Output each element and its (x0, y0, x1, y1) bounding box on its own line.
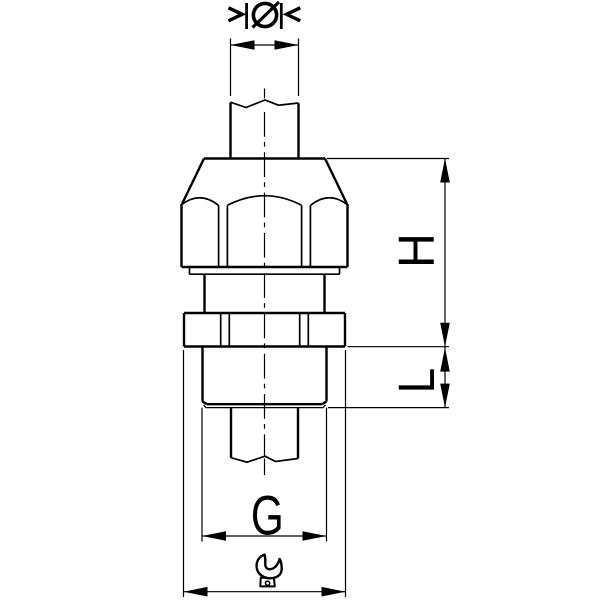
svg-text:L: L (389, 368, 446, 393)
svg-text:H: H (388, 233, 446, 268)
svg-text:G: G (251, 484, 284, 547)
